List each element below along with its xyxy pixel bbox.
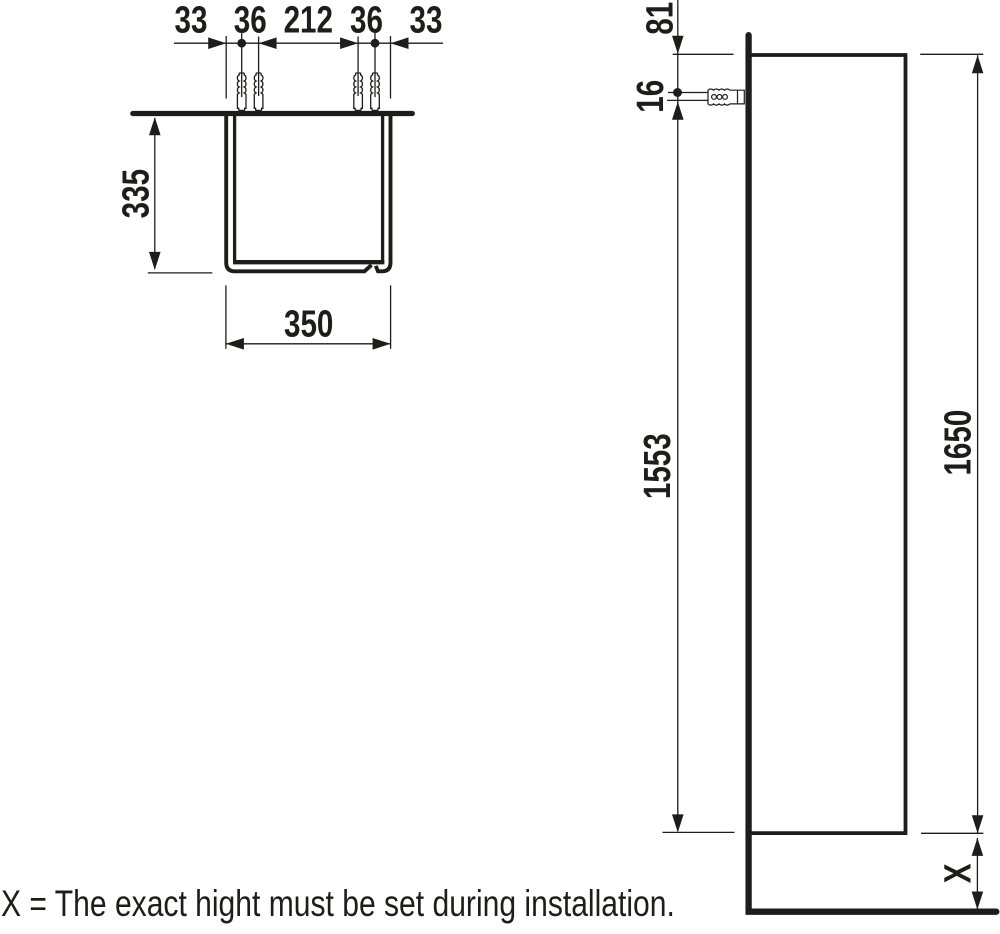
svg-text:1553: 1553	[637, 433, 679, 499]
svg-text:33: 33	[410, 0, 443, 41]
svg-text:335: 335	[115, 169, 157, 218]
svg-text:212: 212	[284, 0, 333, 41]
svg-text:X = The exact hight must be se: X = The exact hight must be set during i…	[1, 883, 675, 925]
svg-text:81: 81	[639, 2, 681, 35]
svg-text:1650: 1650	[937, 410, 979, 476]
svg-text:33: 33	[175, 0, 208, 41]
svg-text:350: 350	[284, 303, 333, 345]
svg-text:16: 16	[629, 80, 671, 113]
svg-text:36: 36	[350, 0, 383, 41]
svg-text:X: X	[937, 863, 979, 883]
svg-text:36: 36	[234, 0, 267, 41]
